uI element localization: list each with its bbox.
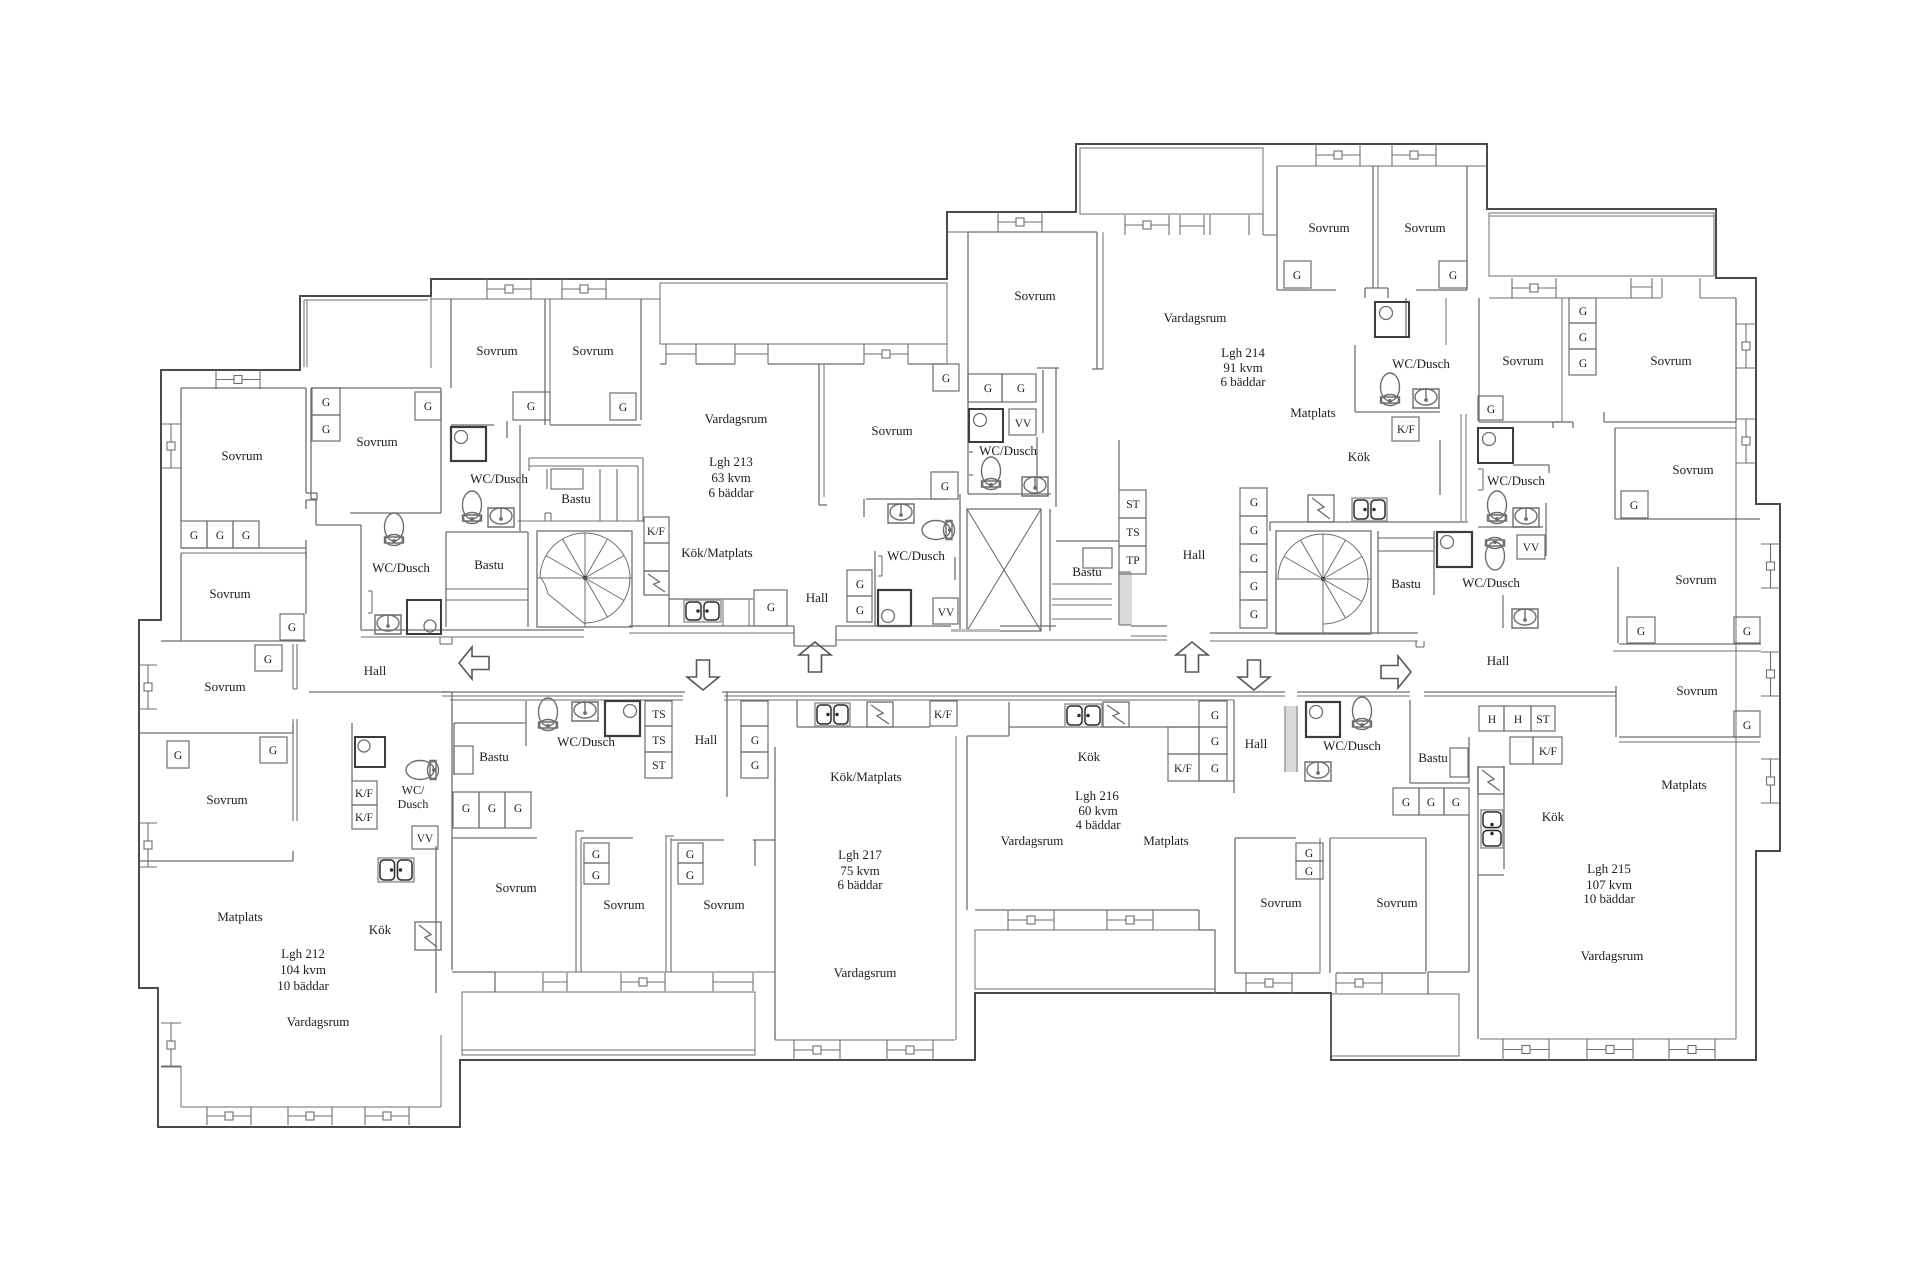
svg-text:Kök: Kök bbox=[369, 922, 392, 937]
svg-text:G: G bbox=[1449, 270, 1457, 282]
svg-text:G: G bbox=[1250, 609, 1258, 621]
svg-text:G: G bbox=[288, 622, 296, 634]
svg-text:Kök/Matplats: Kök/Matplats bbox=[681, 545, 753, 560]
svg-text:Bastu: Bastu bbox=[1418, 750, 1448, 765]
svg-text:Vardagsrum: Vardagsrum bbox=[834, 965, 897, 980]
svg-text:Vardagsrum: Vardagsrum bbox=[287, 1014, 350, 1029]
svg-text:Vardagsrum: Vardagsrum bbox=[1581, 948, 1644, 963]
svg-text:H: H bbox=[1488, 714, 1496, 726]
svg-text:Sovrum: Sovrum bbox=[1672, 462, 1713, 477]
svg-text:G: G bbox=[751, 735, 759, 747]
svg-text:G: G bbox=[269, 745, 277, 757]
svg-text:G: G bbox=[984, 383, 992, 395]
svg-text:Lgh 212: Lgh 212 bbox=[281, 946, 325, 961]
svg-text:G: G bbox=[1293, 270, 1301, 282]
svg-text:G: G bbox=[592, 849, 600, 861]
svg-text:Matplats: Matplats bbox=[1661, 777, 1707, 792]
svg-text:G: G bbox=[1211, 710, 1219, 722]
svg-text:Sovrum: Sovrum bbox=[871, 423, 912, 438]
svg-text:H: H bbox=[1514, 714, 1522, 726]
svg-text:WC/Dusch: WC/Dusch bbox=[372, 560, 430, 575]
svg-text:Lgh 215: Lgh 215 bbox=[1587, 861, 1631, 876]
svg-text:G: G bbox=[1743, 626, 1751, 638]
svg-text:Bastu: Bastu bbox=[1391, 576, 1421, 591]
svg-text:Hall: Hall bbox=[1487, 653, 1510, 668]
svg-text:6 bäddar: 6 bäddar bbox=[1220, 374, 1266, 389]
svg-text:Bastu: Bastu bbox=[561, 491, 591, 506]
svg-text:6 bäddar: 6 bäddar bbox=[708, 485, 754, 500]
svg-text:G: G bbox=[1305, 848, 1313, 860]
svg-text:G: G bbox=[686, 849, 694, 861]
svg-text:Sovrum: Sovrum bbox=[572, 343, 613, 358]
svg-text:Sovrum: Sovrum bbox=[495, 880, 536, 895]
svg-text:WC/Dusch: WC/Dusch bbox=[1487, 473, 1545, 488]
svg-text:G: G bbox=[216, 530, 224, 542]
svg-text:G: G bbox=[856, 605, 864, 617]
svg-text:G: G bbox=[1250, 497, 1258, 509]
svg-text:Bastu: Bastu bbox=[1072, 564, 1102, 579]
svg-text:Kök: Kök bbox=[1348, 449, 1371, 464]
svg-text:G: G bbox=[1579, 358, 1587, 370]
svg-text:ST: ST bbox=[1536, 714, 1549, 726]
svg-text:Vardagsrum: Vardagsrum bbox=[1164, 310, 1227, 325]
svg-text:Lgh 217: Lgh 217 bbox=[838, 847, 882, 862]
svg-text:G: G bbox=[488, 803, 496, 815]
svg-text:K/F: K/F bbox=[1539, 746, 1557, 758]
svg-text:G: G bbox=[424, 401, 432, 413]
svg-text:G: G bbox=[1211, 736, 1219, 748]
svg-text:75 kvm: 75 kvm bbox=[840, 863, 879, 878]
svg-text:63 kvm: 63 kvm bbox=[711, 470, 750, 485]
svg-text:Sovrum: Sovrum bbox=[1675, 572, 1716, 587]
svg-text:TS: TS bbox=[652, 709, 665, 721]
svg-text:G: G bbox=[751, 760, 759, 772]
svg-text:G: G bbox=[686, 870, 694, 882]
svg-text:TS: TS bbox=[652, 735, 665, 747]
svg-text:Vardagsrum: Vardagsrum bbox=[1001, 833, 1064, 848]
svg-text:4 bäddar: 4 bäddar bbox=[1075, 817, 1121, 832]
svg-text:K/F: K/F bbox=[1174, 763, 1192, 775]
svg-text:Sovrum: Sovrum bbox=[209, 586, 250, 601]
svg-text:Sovrum: Sovrum bbox=[221, 448, 262, 463]
svg-text:K/F: K/F bbox=[1397, 424, 1415, 436]
svg-text:G: G bbox=[514, 803, 522, 815]
svg-text:ST: ST bbox=[652, 760, 665, 772]
svg-text:Hall: Hall bbox=[1183, 547, 1206, 562]
svg-text:Hall: Hall bbox=[806, 590, 829, 605]
svg-text:Sovrum: Sovrum bbox=[1404, 220, 1445, 235]
svg-text:G: G bbox=[1305, 866, 1313, 878]
svg-text:G: G bbox=[592, 870, 600, 882]
svg-text:WC/Dusch: WC/Dusch bbox=[887, 548, 945, 563]
svg-text:Matplats: Matplats bbox=[1290, 405, 1336, 420]
svg-text:G: G bbox=[527, 401, 535, 413]
svg-text:Sovrum: Sovrum bbox=[1376, 895, 1417, 910]
svg-text:Sovrum: Sovrum bbox=[356, 434, 397, 449]
svg-text:G: G bbox=[1211, 763, 1219, 775]
svg-text:G: G bbox=[462, 803, 470, 815]
svg-text:Bastu: Bastu bbox=[479, 749, 509, 764]
svg-text:WC/Dusch: WC/Dusch bbox=[979, 443, 1037, 458]
svg-text:VV: VV bbox=[1523, 542, 1540, 554]
svg-text:Matplats: Matplats bbox=[1143, 833, 1189, 848]
svg-text:G: G bbox=[1250, 581, 1258, 593]
svg-text:107 kvm: 107 kvm bbox=[1586, 877, 1632, 892]
svg-text:10 bäddar: 10 bäddar bbox=[277, 978, 329, 993]
svg-text:Sovrum: Sovrum bbox=[1260, 895, 1301, 910]
svg-text:Lgh 216: Lgh 216 bbox=[1075, 788, 1119, 803]
svg-text:Dusch: Dusch bbox=[398, 797, 429, 811]
svg-text:G: G bbox=[264, 654, 272, 666]
svg-text:Kök: Kök bbox=[1542, 809, 1565, 824]
svg-text:60 kvm: 60 kvm bbox=[1078, 803, 1117, 818]
svg-text:G: G bbox=[767, 602, 775, 614]
svg-text:K/F: K/F bbox=[647, 526, 665, 538]
svg-text:Hall: Hall bbox=[1245, 736, 1268, 751]
svg-text:Sovrum: Sovrum bbox=[603, 897, 644, 912]
svg-text:VV: VV bbox=[417, 833, 434, 845]
svg-text:G: G bbox=[1427, 797, 1435, 809]
svg-text:K/F: K/F bbox=[355, 812, 373, 824]
svg-text:Sovrum: Sovrum bbox=[1014, 288, 1055, 303]
svg-text:Sovrum: Sovrum bbox=[206, 792, 247, 807]
svg-text:Sovrum: Sovrum bbox=[1308, 220, 1349, 235]
svg-text:6 bäddar: 6 bäddar bbox=[837, 877, 883, 892]
svg-text:G: G bbox=[242, 530, 250, 542]
svg-text:WC/Dusch: WC/Dusch bbox=[1392, 356, 1450, 371]
svg-text:Vardagsrum: Vardagsrum bbox=[705, 411, 768, 426]
svg-text:Sovrum: Sovrum bbox=[204, 679, 245, 694]
svg-text:TP: TP bbox=[1126, 555, 1139, 567]
svg-text:G: G bbox=[1637, 626, 1645, 638]
svg-text:Sovrum: Sovrum bbox=[1676, 683, 1717, 698]
svg-text:91 kvm: 91 kvm bbox=[1223, 360, 1262, 375]
svg-text:Hall: Hall bbox=[364, 663, 387, 678]
svg-text:ST: ST bbox=[1126, 499, 1139, 511]
svg-text:Matplats: Matplats bbox=[217, 909, 263, 924]
svg-text:Lgh 213: Lgh 213 bbox=[709, 454, 753, 469]
svg-text:Kök: Kök bbox=[1078, 749, 1101, 764]
svg-text:G: G bbox=[941, 481, 949, 493]
svg-text:Kök/Matplats: Kök/Matplats bbox=[830, 769, 902, 784]
svg-text:104 kvm: 104 kvm bbox=[280, 962, 326, 977]
svg-text:G: G bbox=[1017, 383, 1025, 395]
svg-text:WC/Dusch: WC/Dusch bbox=[1323, 738, 1381, 753]
svg-text:G: G bbox=[1630, 500, 1638, 512]
svg-text:G: G bbox=[1250, 525, 1258, 537]
svg-text:Bastu: Bastu bbox=[474, 557, 504, 572]
svg-text:K/F: K/F bbox=[934, 709, 952, 721]
svg-text:Sovrum: Sovrum bbox=[1502, 353, 1543, 368]
svg-text:G: G bbox=[322, 397, 330, 409]
svg-text:G: G bbox=[856, 579, 864, 591]
svg-text:G: G bbox=[174, 750, 182, 762]
svg-text:Hall: Hall bbox=[695, 732, 718, 747]
svg-text:G: G bbox=[942, 373, 950, 385]
svg-text:Sovrum: Sovrum bbox=[703, 897, 744, 912]
svg-text:Sovrum: Sovrum bbox=[1650, 353, 1691, 368]
svg-text:Sovrum: Sovrum bbox=[476, 343, 517, 358]
svg-text:G: G bbox=[1402, 797, 1410, 809]
svg-text:G: G bbox=[190, 530, 198, 542]
svg-text:VV: VV bbox=[1015, 418, 1032, 430]
svg-text:WC/: WC/ bbox=[402, 783, 425, 797]
svg-text:G: G bbox=[322, 424, 330, 436]
svg-text:TS: TS bbox=[1126, 527, 1139, 539]
svg-text:Lgh 214: Lgh 214 bbox=[1221, 345, 1265, 360]
svg-text:G: G bbox=[1579, 306, 1587, 318]
svg-text:K/F: K/F bbox=[355, 788, 373, 800]
svg-text:G: G bbox=[1743, 720, 1751, 732]
svg-text:G: G bbox=[1250, 553, 1258, 565]
svg-text:G: G bbox=[1579, 332, 1587, 344]
svg-text:WC/Dusch: WC/Dusch bbox=[1462, 575, 1520, 590]
svg-text:VV: VV bbox=[938, 607, 955, 619]
svg-text:G: G bbox=[619, 402, 627, 414]
svg-text:10 bäddar: 10 bäddar bbox=[1583, 891, 1635, 906]
svg-text:G: G bbox=[1487, 404, 1495, 416]
svg-text:G: G bbox=[1452, 797, 1460, 809]
